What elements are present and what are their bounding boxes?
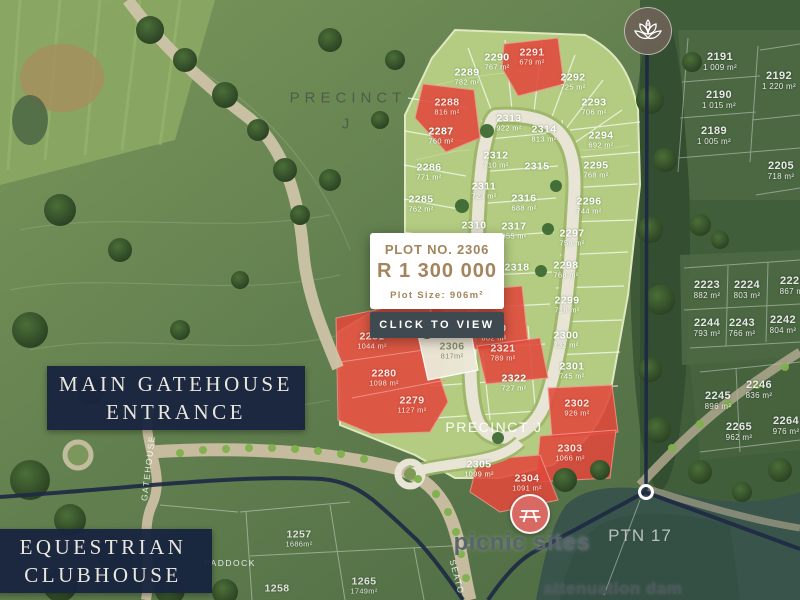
region-label-attenuation-dam: attenuation dam [544, 579, 683, 599]
plot-popup: PLOT NO. 2306 R 1 300 000 Plot Size: 906… [370, 233, 504, 338]
plot-label-2244[interactable]: 2244793 m² [694, 318, 721, 338]
clubhouse-line2: CLUBHOUSE [0, 561, 212, 589]
plot-label-2224[interactable]: 2224803 m² [734, 280, 761, 300]
plot-label-1257[interactable]: 12571686m² [285, 530, 312, 549]
plot-label-2285[interactable]: 2285762 m² [408, 195, 433, 214]
plot-label-2290[interactable]: 2290767 m² [484, 53, 509, 72]
plot-label-2192[interactable]: 21921 220 m² [762, 71, 796, 91]
region-label-precinct-j: PRECINCT J [445, 419, 542, 435]
plot-label-2302[interactable]: 2302926 m² [564, 399, 589, 418]
region-label-seato: SEATO [448, 559, 467, 596]
plot-label-2317[interactable]: 2317855 m² [501, 222, 526, 241]
plot-label-2297[interactable]: 2297758 m² [559, 229, 584, 248]
plot-label-2301[interactable]: 2301745 m² [559, 362, 584, 381]
plot-label-2298[interactable]: 2298768 m² [553, 261, 578, 280]
plot-label-2289[interactable]: 2289782 m² [454, 68, 479, 87]
plot-label-2291[interactable]: 2291679 m² [519, 48, 544, 67]
plot-label-2287[interactable]: 2287760 m² [428, 127, 453, 146]
region-label-ptn-17: PTN 17 [608, 526, 672, 546]
plot-label-2315[interactable]: 2315 [525, 161, 550, 172]
plot-label-2264[interactable]: 2264976 m² [773, 416, 800, 436]
plot-label-2243[interactable]: 2243766 m² [729, 318, 756, 338]
plot-label-2321[interactable]: 2321789 m² [490, 344, 515, 363]
region-label-precinct: PRECINCT [290, 90, 407, 107]
plot-label-2303[interactable]: 23031066 m² [555, 444, 585, 463]
popup-plot-size: Plot Size: 906m² [374, 290, 500, 301]
popup-price: R 1 300 000 [374, 260, 500, 283]
popup-plot-number: PLOT NO. 2306 [374, 242, 500, 257]
plot-label-2225[interactable]: 2225867 m² [780, 276, 800, 296]
region-label-picnic-sites: picnic sites [454, 529, 591, 557]
region-label-j: J [342, 116, 355, 133]
plot-label-2245[interactable]: 2245896 m² [705, 391, 732, 411]
plot-label-1258[interactable]: 1258 [265, 583, 290, 594]
plot-label-2311[interactable]: 2311723 m² [471, 182, 496, 201]
plot-label-2280[interactable]: 22801098 m² [369, 369, 399, 388]
plot-label-2318[interactable]: 2318 [505, 262, 530, 273]
plot-label-2294[interactable]: 2294692 m² [588, 131, 613, 150]
plot-label-2314[interactable]: 2314813 m² [531, 125, 556, 144]
plot-label-2242[interactable]: 2242804 m² [770, 315, 797, 335]
lotus-icon[interactable] [624, 7, 672, 55]
plot-label-2316[interactable]: 2316688 m² [511, 194, 536, 213]
plot-label-2306[interactable]: 2306817m² [440, 342, 465, 361]
plot-label-2312[interactable]: 2312710 m² [483, 151, 508, 170]
plot-label-2205[interactable]: 2205718 m² [768, 161, 795, 181]
clubhouse-line1: EQUESTRIAN [0, 533, 212, 561]
gatehouse-line1: MAIN GATEHOUSE [47, 370, 305, 398]
plot-label-2189[interactable]: 21891 005 m² [697, 126, 731, 146]
plot-label-2288[interactable]: 2288816 m² [434, 98, 459, 117]
plot-label-2304[interactable]: 23041091 m² [512, 474, 542, 493]
plot-label-2322[interactable]: 2322727 m² [501, 374, 526, 393]
plot-label-2265[interactable]: 2265962 m² [726, 422, 753, 442]
region-label-gatehouse: GATEHOUSE [139, 435, 157, 502]
estate-map: 2290767 m²2289782 m²2287760 m²2286771 m²… [0, 0, 800, 600]
plot-label-2279[interactable]: 22791127 m² [397, 396, 426, 415]
plot-label-2190[interactable]: 21901 015 m² [702, 90, 736, 110]
picnic-sites-marker[interactable] [510, 494, 550, 534]
plot-label-2191[interactable]: 21911 009 m² [703, 52, 737, 72]
plot-label-2313[interactable]: 2313922 m² [496, 114, 521, 133]
plot-label-2223[interactable]: 2223882 m² [694, 280, 721, 300]
gatehouse-line2: ENTRANCE [47, 398, 305, 426]
plot-label-2286[interactable]: 2286771 m² [416, 163, 441, 182]
gatehouse-entrance-label: MAIN GATEHOUSE ENTRANCE [47, 366, 305, 430]
plot-label-2310[interactable]: 2310 [462, 220, 487, 231]
plot-label-2305[interactable]: 23051099 m² [464, 460, 494, 479]
plot-label-2295[interactable]: 2295768 m² [583, 161, 608, 180]
plot-label-2299[interactable]: 2299716 m² [554, 296, 579, 315]
plot-label-2293[interactable]: 2293706 m² [581, 98, 606, 117]
equestrian-clubhouse-label: EQUESTRIAN CLUBHOUSE [0, 529, 212, 593]
plot-label-2292[interactable]: 2292725 m² [560, 73, 585, 92]
click-to-view-button[interactable]: CLICK TO VIEW [370, 312, 504, 338]
plot-label-2246[interactable]: 2246836 m² [746, 380, 773, 400]
plot-label-1265[interactable]: 12651749m² [350, 577, 377, 596]
plot-label-2300[interactable]: 2300732 m² [553, 331, 578, 350]
plot-popup-card: PLOT NO. 2306 R 1 300 000 Plot Size: 906… [370, 233, 504, 309]
picnic-table-icon [518, 502, 542, 526]
lotus-glyph [631, 14, 665, 48]
plot-label-2296[interactable]: 2296744 m² [576, 197, 601, 216]
